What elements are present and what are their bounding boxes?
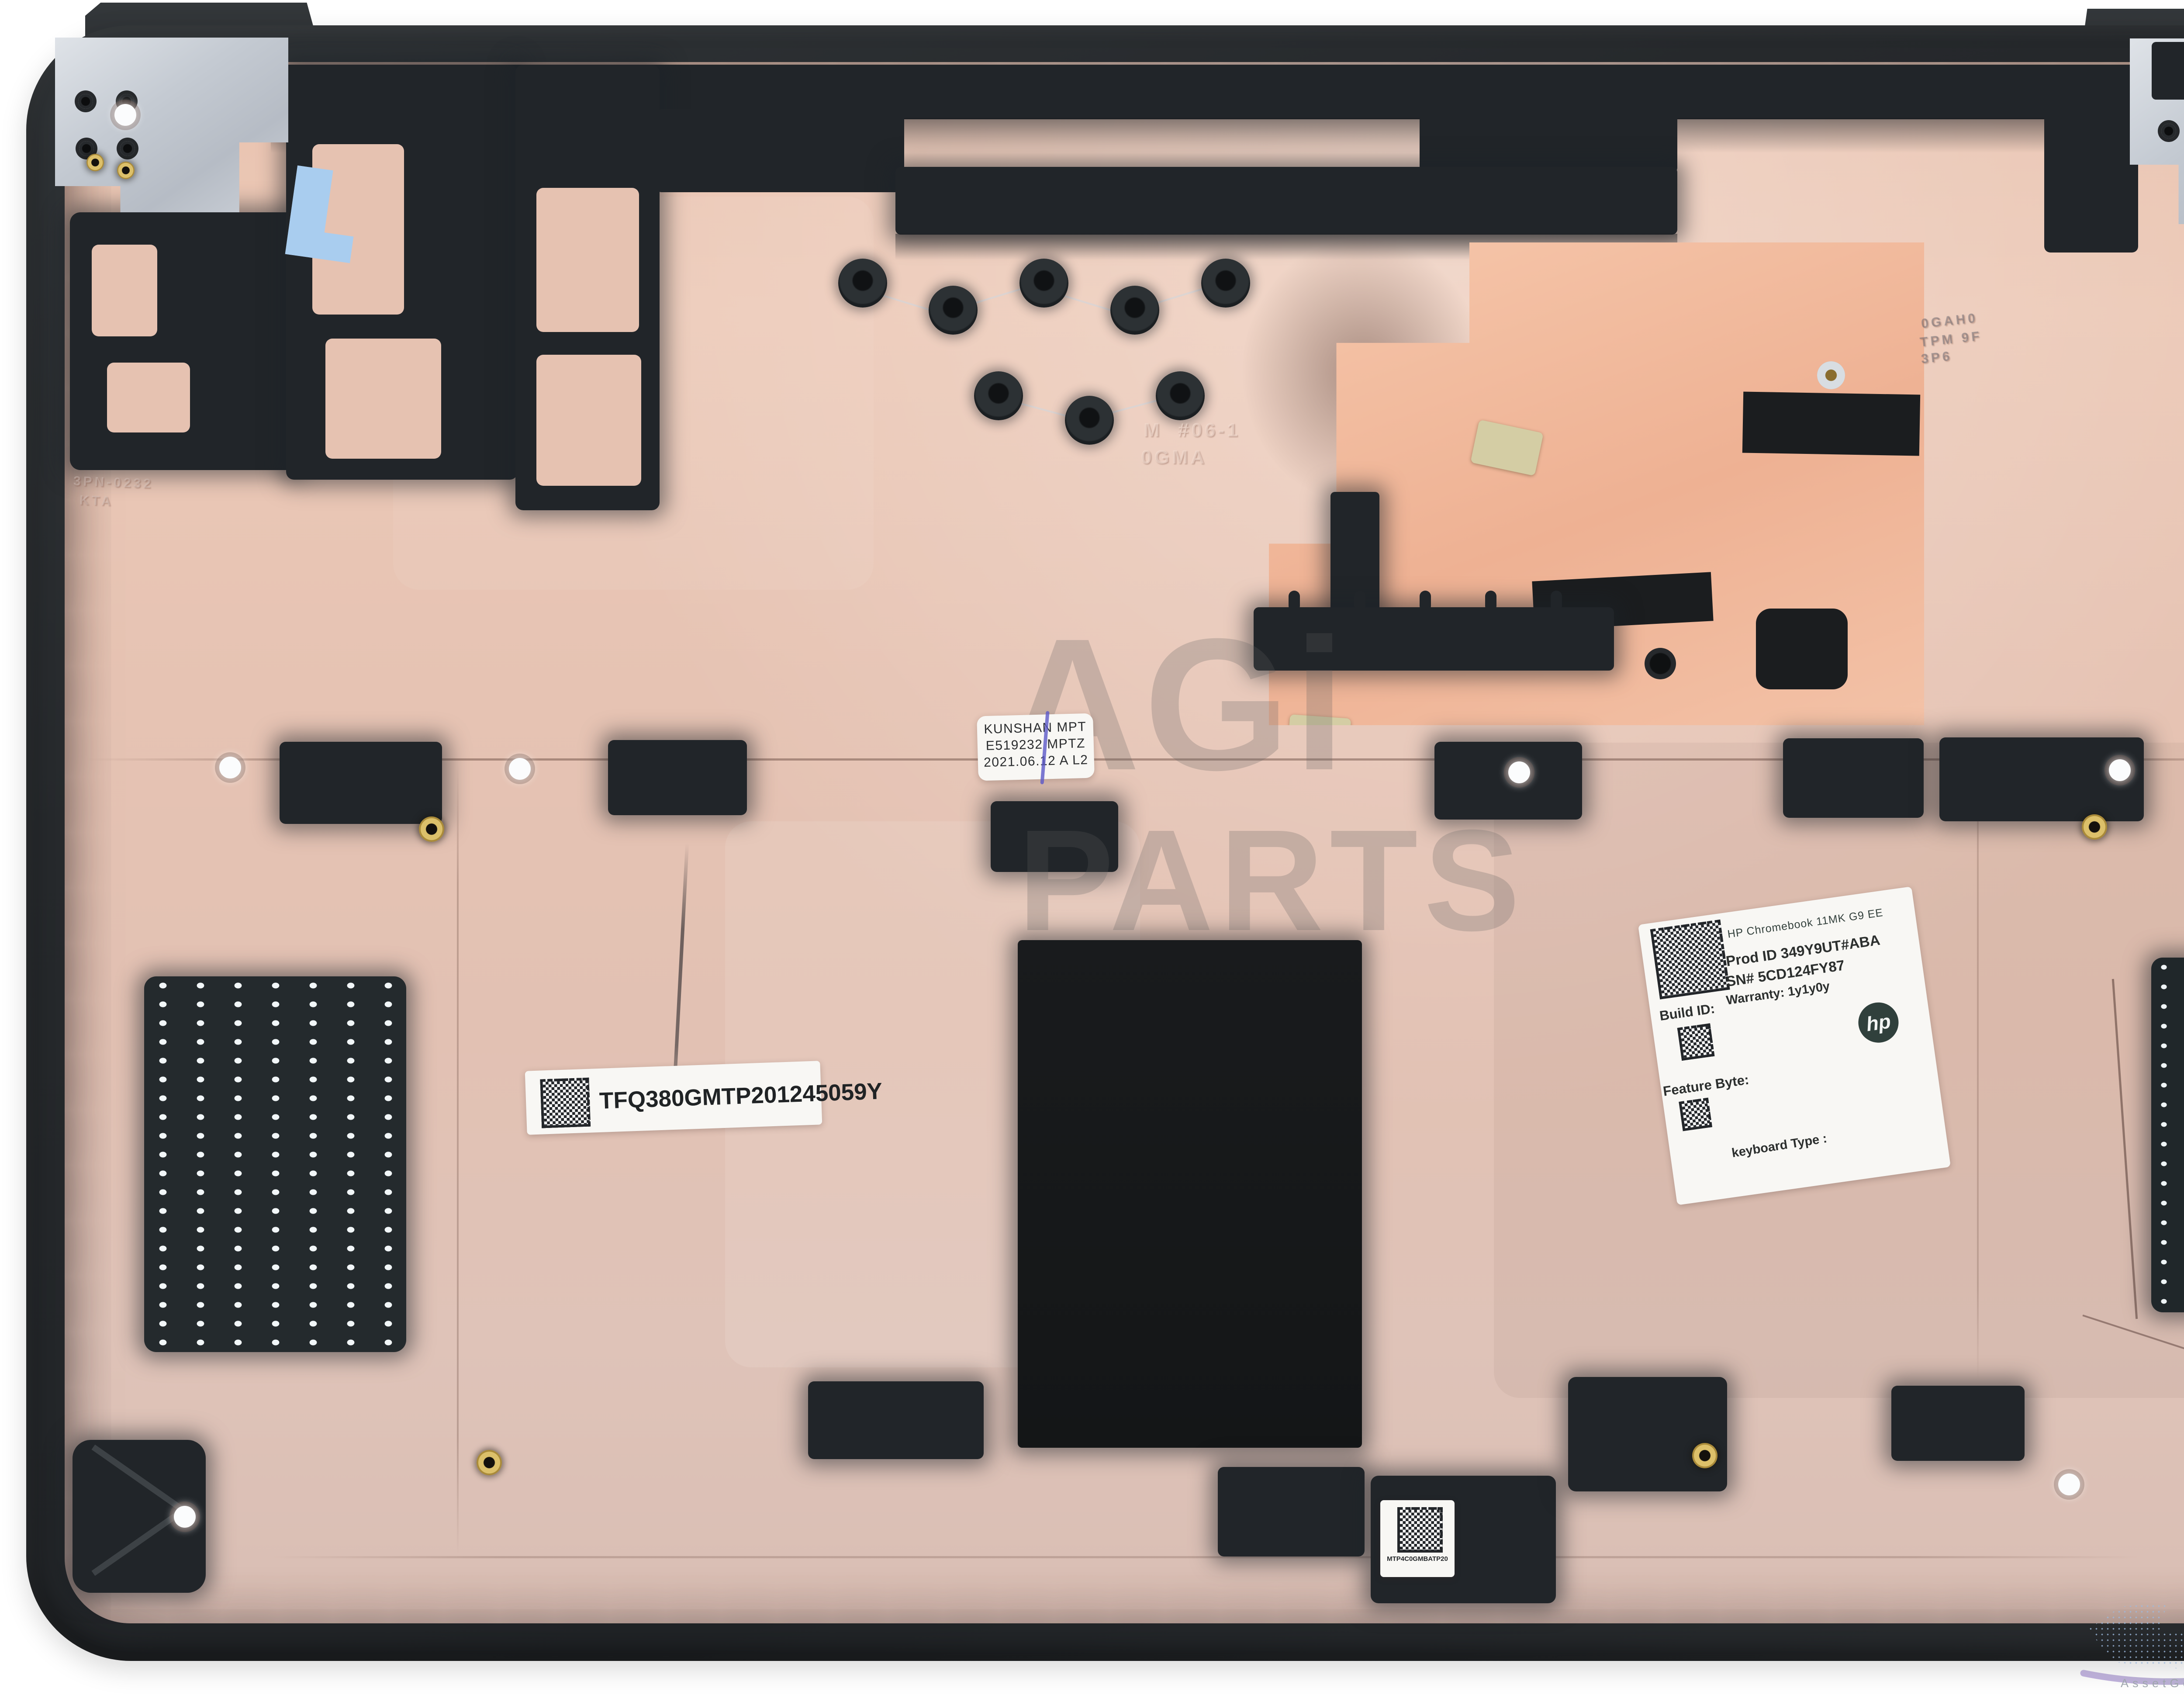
screw-boss [1156, 371, 1205, 420]
rib-tooth [1485, 591, 1496, 612]
product-photo: M #06-1 0GMA 3PN-0232 KTA 0GAH0 TPM 9F 3… [0, 0, 2184, 1695]
frame-window [107, 363, 190, 432]
rubber-grommet [1645, 648, 1676, 679]
mold-mark: 0GMA [1141, 446, 1207, 468]
watermark-line2: PARTS [1018, 808, 1526, 952]
brass-insert [86, 154, 104, 171]
grounding-tab [1470, 419, 1544, 476]
through-hole [2109, 759, 2131, 781]
connector-block [808, 1381, 984, 1459]
board-code-text: MTP4C0GMBATP20 [1380, 1555, 1455, 1563]
frame-window [325, 339, 441, 459]
datamatrix-icon [1650, 920, 1730, 1000]
molded-frame [1420, 108, 1677, 174]
screw-boss [1019, 259, 1068, 308]
brass-insert [419, 816, 444, 842]
screw-hole [120, 141, 135, 156]
speaker-grille-right [2151, 958, 2184, 1312]
connector-block [1218, 1467, 1365, 1557]
feature-byte-datamatrix-icon [1679, 1098, 1712, 1131]
logo-tagline: AssetGenie Incorporated [2121, 1677, 2184, 1690]
mold-seam [271, 1556, 2140, 1558]
factory-label-line3: 2021.06.12 A L2 [978, 752, 1094, 771]
frame-window [92, 245, 157, 336]
qr-code-icon [540, 1078, 591, 1128]
screw-boss [1110, 286, 1159, 335]
keyboard-type-label: keyboard Type : [1731, 1131, 1828, 1161]
connector-block [280, 742, 442, 824]
through-hole [2058, 1474, 2080, 1495]
through-hole [174, 1506, 196, 1528]
mold-mark: 3PN-0232 [73, 474, 153, 491]
mold-mark: M #06-1 [1144, 419, 1240, 441]
brass-insert [117, 162, 135, 179]
hp-logo: hp [1856, 1000, 1901, 1045]
screw-hole [79, 141, 94, 156]
molded-frame [655, 109, 904, 192]
board-code-datamatrix-icon [1397, 1507, 1443, 1553]
through-hole [219, 757, 241, 778]
connector-block [1783, 738, 1924, 818]
metal-grommet [1817, 361, 1845, 389]
through-hole [509, 758, 531, 780]
factory-label: KUNSHAN MPT E519232 MPTZ 2021.06.12 A L2 [977, 713, 1095, 781]
brass-insert [2082, 814, 2107, 840]
mold-seam [457, 764, 459, 1555]
through-hole [1508, 761, 1530, 783]
frame-window [536, 355, 641, 486]
rib-tooth [1551, 591, 1562, 612]
brass-insert [477, 1450, 502, 1475]
thermal-pad [1018, 940, 1362, 1448]
agi-logo: AGI AssetGenie Incorporated [2075, 1590, 2184, 1695]
brass-insert [1692, 1443, 1717, 1468]
mold-seam [1977, 743, 1979, 1380]
screw-boss [929, 286, 978, 335]
connector-block [1891, 1386, 2025, 1461]
build-id-datamatrix-icon [1677, 1023, 1715, 1061]
speaker-grille-left [144, 976, 406, 1352]
screw-boss [838, 259, 887, 308]
black-tape [1742, 391, 1920, 456]
screw-boss [1065, 396, 1114, 445]
serial-barcode-label: TFQ380GMTP201245059Y [525, 1061, 822, 1135]
vent-bar [895, 167, 1677, 235]
screw-hole [2161, 124, 2176, 138]
frame-window [536, 188, 639, 332]
rib-tooth [1420, 591, 1431, 612]
swoosh-icon [2075, 1599, 2184, 1686]
board-code-label: MTP4C0GMBATP20 [1380, 1500, 1455, 1577]
connector-block [1568, 1377, 1727, 1491]
black-tape [1756, 609, 1848, 689]
screw-boss [974, 371, 1023, 420]
hinge-hardware [2152, 42, 2184, 100]
connector-block [1939, 737, 2144, 821]
connector-block [608, 740, 747, 815]
molded-frame [2044, 113, 2138, 253]
product-label: HP Chromebook 11MK G9 EE Prod ID 349Y9UT… [1638, 886, 1951, 1205]
build-id-label: Build ID: [1659, 1001, 1716, 1024]
feature-byte-label: Feature Byte: [1662, 1072, 1750, 1099]
through-hole [114, 104, 136, 126]
rib-tooth [1354, 591, 1365, 612]
mold-mark: KTA [79, 493, 114, 509]
screw-hole [78, 94, 93, 109]
